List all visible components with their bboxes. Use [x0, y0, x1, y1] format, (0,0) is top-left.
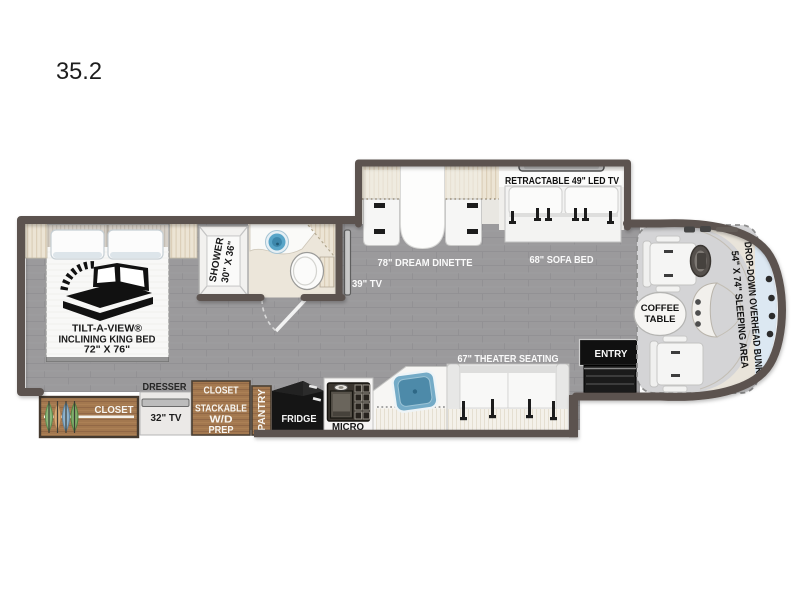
svg-text:39" TV: 39" TV — [352, 278, 382, 290]
svg-text:PREP: PREP — [209, 425, 234, 436]
svg-text:35.2: 35.2 — [56, 58, 102, 85]
svg-text:67" THEATER SEATING: 67" THEATER SEATING — [458, 353, 559, 365]
svg-text:STACKABLE: STACKABLE — [195, 404, 247, 415]
svg-text:DRESSER: DRESSER — [143, 381, 187, 393]
svg-text:PANTRY: PANTRY — [257, 389, 268, 431]
svg-text:68" SOFA BED: 68" SOFA BED — [530, 255, 594, 266]
svg-text:RETRACTABLE 49" LED TV: RETRACTABLE 49" LED TV — [505, 176, 619, 187]
svg-text:78" DREAM DINETTE: 78" DREAM DINETTE — [378, 257, 473, 269]
svg-text:CLOSET: CLOSET — [95, 404, 135, 416]
svg-text:TABLE: TABLE — [645, 314, 676, 325]
svg-text:W/D: W/D — [210, 415, 233, 426]
svg-text:ENTRY: ENTRY — [595, 348, 628, 360]
svg-text:COFFEE: COFFEE — [641, 303, 680, 314]
svg-text:72" X 76": 72" X 76" — [84, 344, 130, 356]
svg-text:FRIDGE: FRIDGE — [282, 413, 317, 425]
svg-text:32" TV: 32" TV — [151, 412, 182, 424]
svg-text:CLOSET: CLOSET — [204, 386, 239, 397]
